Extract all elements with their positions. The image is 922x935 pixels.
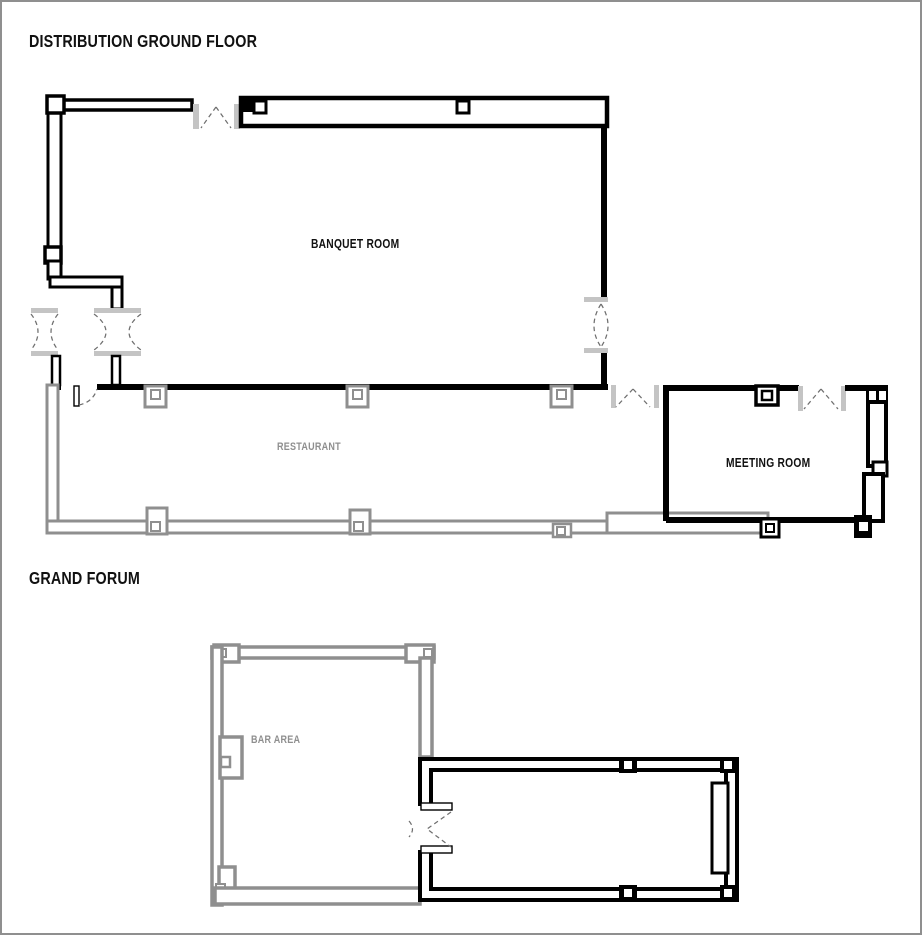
banquet-room-east-wall bbox=[584, 126, 608, 385]
banquet-restaurant-wall bbox=[55, 384, 659, 408]
double-acting-door bbox=[94, 314, 141, 350]
double-door-swing bbox=[804, 389, 838, 409]
entrance-vestibule bbox=[31, 277, 141, 385]
room-label-bar-area: BAR AREA bbox=[251, 734, 300, 746]
room-label-banquet-room: BANQUET ROOM bbox=[311, 237, 399, 251]
plan-distribution-ground-floor bbox=[31, 96, 888, 538]
double-door-swing bbox=[201, 107, 231, 128]
double-door-swing bbox=[616, 389, 650, 407]
plan-grand-forum bbox=[212, 645, 737, 905]
door-leaf bbox=[74, 386, 79, 406]
double-acting-door bbox=[31, 314, 58, 350]
floor-plan-sheet: DISTRIBUTION GROUND FLOOR BANQUET ROOM R… bbox=[0, 0, 922, 935]
room-label-restaurant: RESTAURANT bbox=[277, 441, 341, 453]
plan-title-ground-floor: DISTRIBUTION GROUND FLOOR bbox=[29, 31, 257, 52]
forum-hall-walls bbox=[409, 757, 737, 901]
banquet-room-west-wall bbox=[45, 99, 61, 279]
door-swing bbox=[409, 821, 413, 837]
door-swing bbox=[79, 389, 97, 405]
banquet-room-north-wall bbox=[47, 96, 607, 129]
bar-area-walls bbox=[212, 645, 434, 905]
room-label-meeting-room: MEETING ROOM bbox=[726, 456, 810, 470]
plan-title-grand-forum: GRAND FORUM bbox=[29, 568, 140, 589]
swing-door bbox=[594, 304, 608, 347]
stage-platform bbox=[712, 783, 728, 873]
